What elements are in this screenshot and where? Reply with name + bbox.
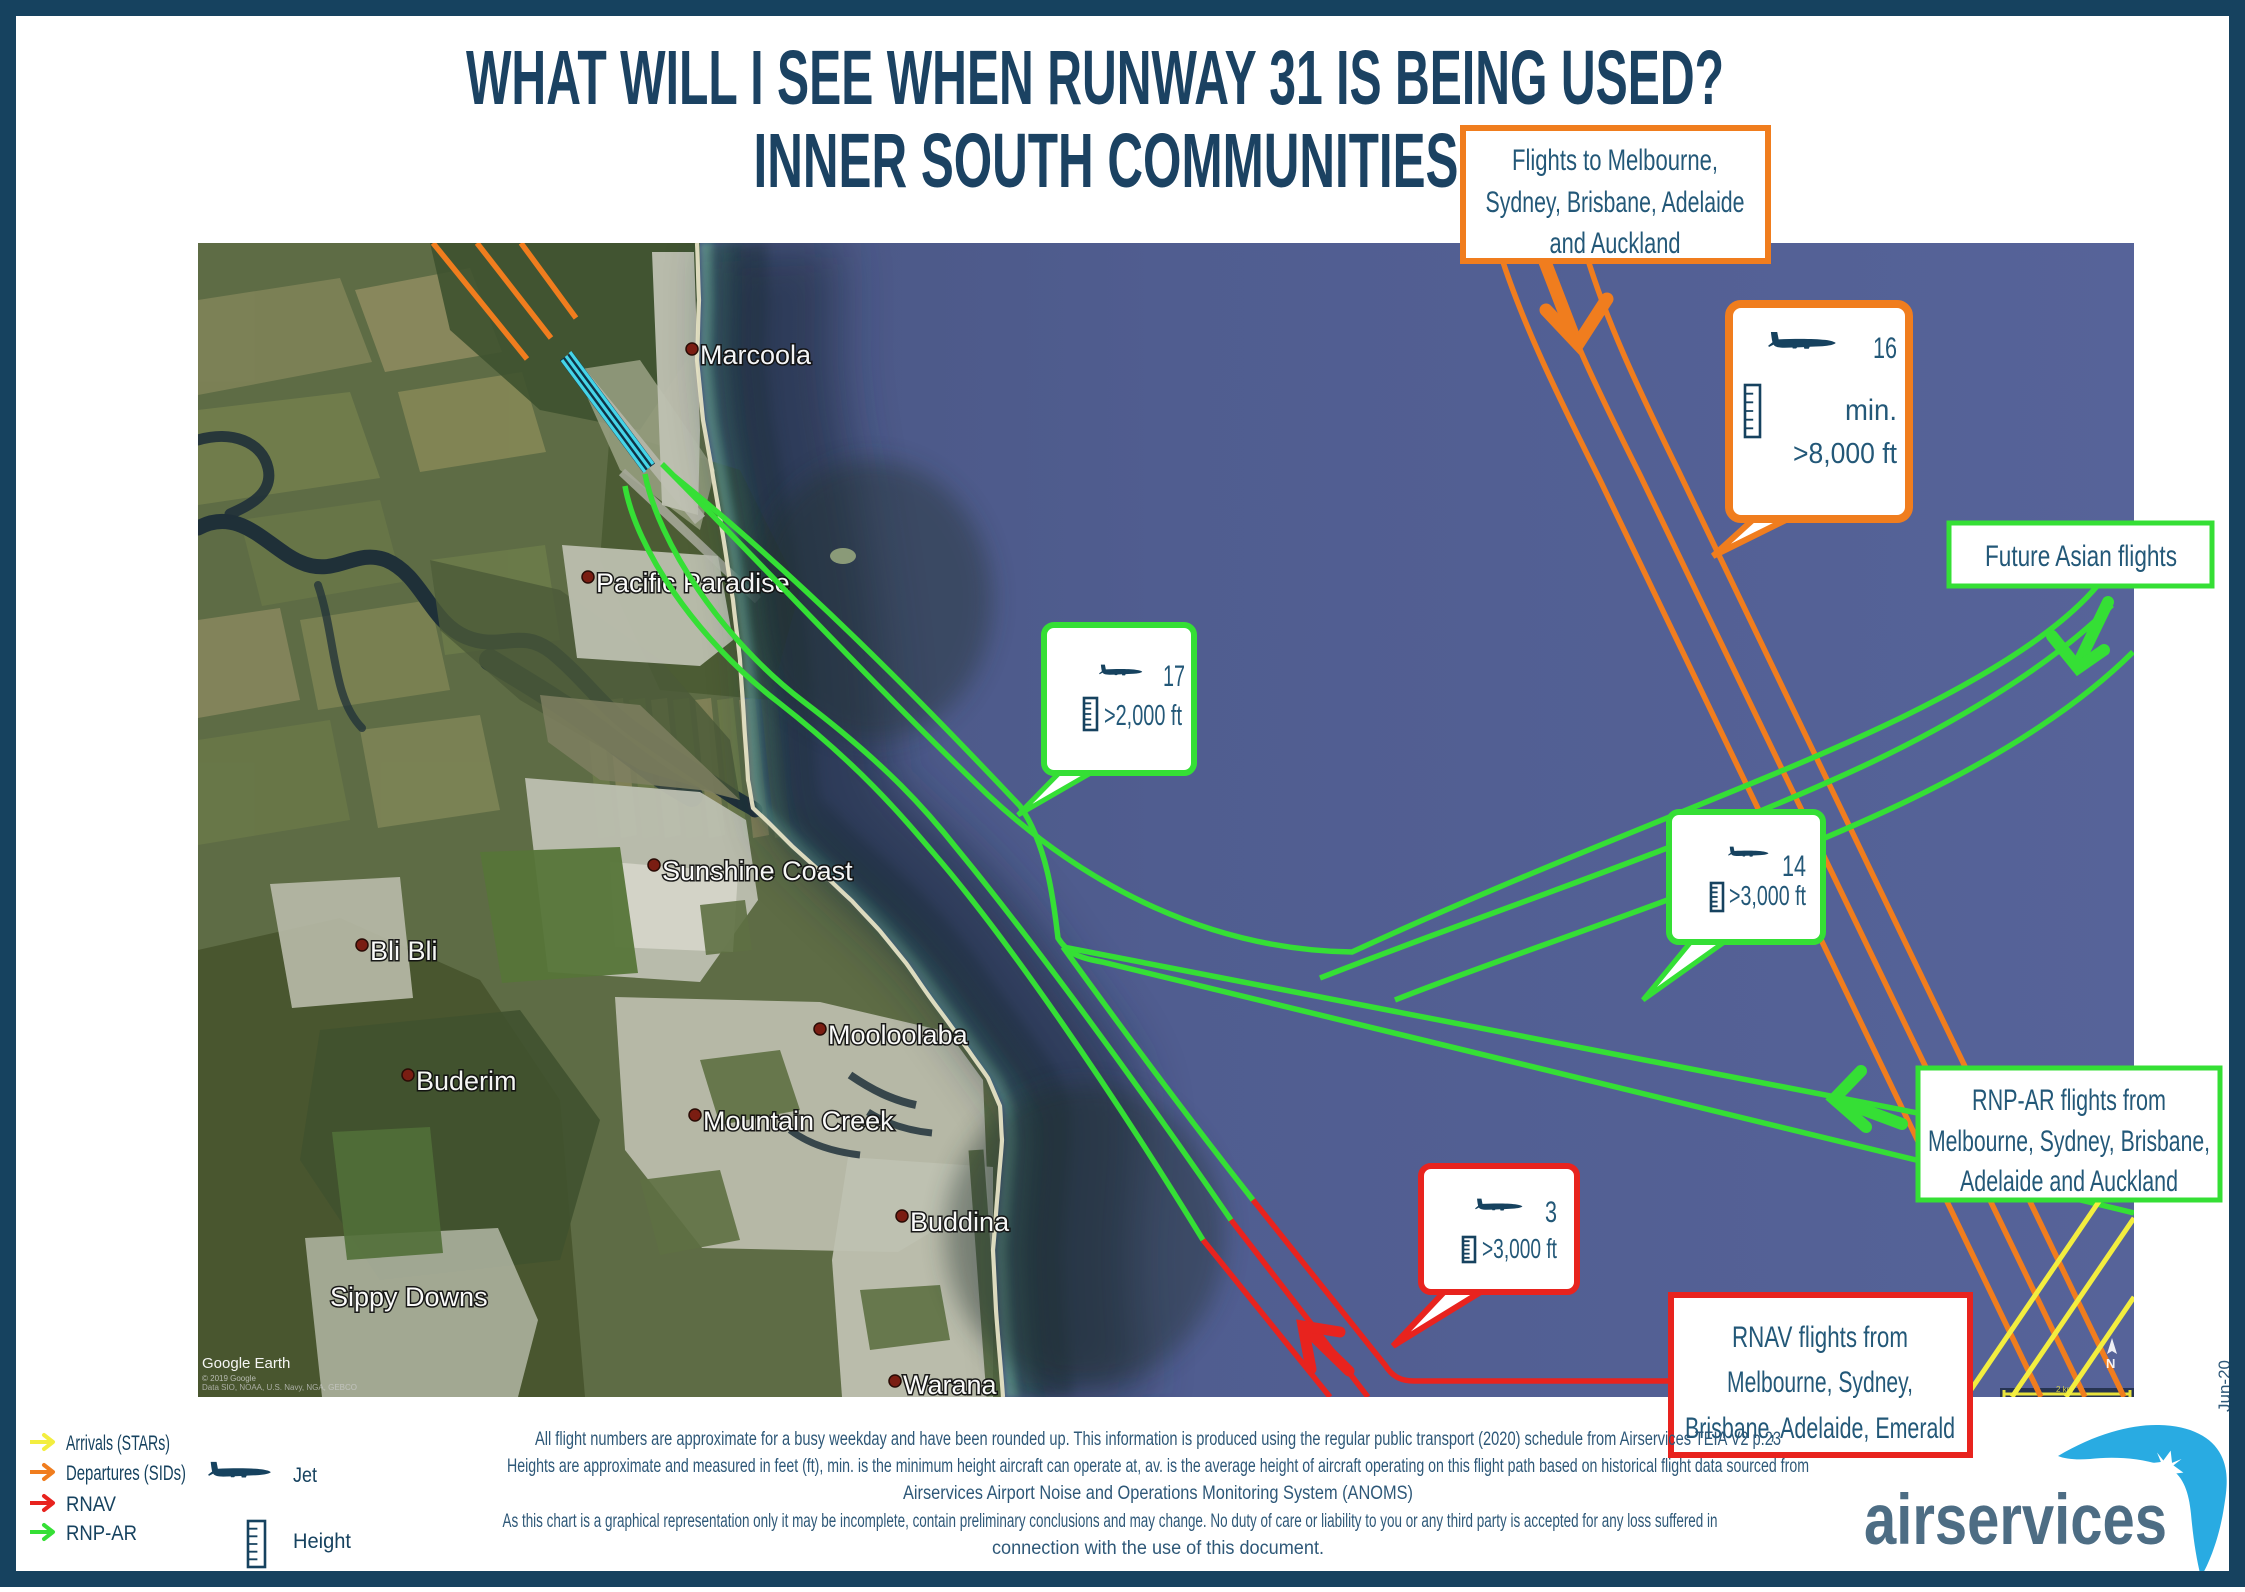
svg-text:Melbourne, Sydney, Brisbane,: Melbourne, Sydney, Brisbane, xyxy=(1928,1125,2210,1158)
svg-text:3: 3 xyxy=(1545,1196,1557,1229)
svg-text:Sydney, Brisbane, Adelaide: Sydney, Brisbane, Adelaide xyxy=(1486,186,1745,219)
svg-text:Mooloolaba: Mooloolaba xyxy=(828,1020,969,1050)
svg-text:As this chart is a graphical r: As this chart is a graphical representat… xyxy=(503,1511,1718,1532)
svg-text:Mountain Creek: Mountain Creek xyxy=(703,1106,894,1136)
svg-text:Buddina: Buddina xyxy=(910,1207,1010,1237)
svg-text:>8,000 ft: >8,000 ft xyxy=(1793,438,1897,470)
svg-text:Data SIO, NOAA, U.S. Navy, NGA: Data SIO, NOAA, U.S. Navy, NGA, GEBCO xyxy=(202,1383,357,1392)
svg-text:Google Earth: Google Earth xyxy=(202,1355,290,1372)
svg-text:connection with the use of thi: connection with the use of this document… xyxy=(992,1538,1324,1559)
svg-text:© 2019 Google: © 2019 Google xyxy=(202,1374,256,1383)
svg-text:Sunshine Coast: Sunshine Coast xyxy=(662,856,853,886)
svg-text:Airservices Airport Noise and: Airservices Airport Noise and Operations… xyxy=(903,1483,1413,1504)
svg-text:RNAV flights from: RNAV flights from xyxy=(1732,1321,1908,1354)
svg-text:Melbourne, Sydney,: Melbourne, Sydney, xyxy=(1727,1366,1913,1399)
svg-text:>3,000 ft: >3,000 ft xyxy=(1482,1233,1557,1264)
svg-text:Jet: Jet xyxy=(293,1464,317,1487)
svg-text:Arrivals (STARs): Arrivals (STARs) xyxy=(66,1432,170,1455)
svg-text:and Auckland: and Auckland xyxy=(1550,227,1681,260)
svg-text:Sippy Downs: Sippy Downs xyxy=(330,1282,488,1312)
svg-text:All flight numbers are approxi: All flight numbers are approximate for a… xyxy=(535,1429,1781,1450)
svg-text:min.: min. xyxy=(1845,394,1897,427)
svg-text:14: 14 xyxy=(1782,850,1806,883)
svg-text:INNER SOUTH COMMUNITIES: INNER SOUTH COMMUNITIES xyxy=(754,118,1459,204)
svg-text:Heights are approximate and me: Heights are approximate and measured in … xyxy=(507,1456,1809,1477)
svg-text:RNP-AR: RNP-AR xyxy=(66,1522,137,1545)
svg-text:RNP-AR flights from: RNP-AR flights from xyxy=(1972,1084,2166,1117)
svg-text:Adelaide and Auckland: Adelaide and Auckland xyxy=(1960,1165,2178,1198)
svg-text:Marcoola: Marcoola xyxy=(700,340,812,370)
svg-text:Buderim: Buderim xyxy=(416,1066,517,1096)
svg-text:N: N xyxy=(2106,1356,2115,1371)
svg-text:>2,000 ft: >2,000 ft xyxy=(1104,700,1182,732)
svg-text:Warana: Warana xyxy=(903,1370,998,1400)
svg-text:17: 17 xyxy=(1163,660,1185,693)
svg-text:16: 16 xyxy=(1873,332,1897,365)
svg-text:Flights to Melbourne,: Flights to Melbourne, xyxy=(1512,144,1718,177)
svg-text:Height: Height xyxy=(293,1530,351,1553)
svg-text:Bli Bli: Bli Bli xyxy=(370,936,438,966)
svg-text:RNAV: RNAV xyxy=(66,1493,116,1516)
svg-text:Departures (SIDs): Departures (SIDs) xyxy=(66,1462,186,1485)
svg-text:>3,000 ft: >3,000 ft xyxy=(1729,880,1806,911)
svg-text:airservices: airservices xyxy=(1864,1481,2167,1560)
svg-text:WHAT WILL I SEE WHEN RUNWAY 31: WHAT WILL I SEE WHEN RUNWAY 31 IS BEING … xyxy=(466,35,1724,121)
svg-text:Future Asian flights: Future Asian flights xyxy=(1985,540,2177,573)
